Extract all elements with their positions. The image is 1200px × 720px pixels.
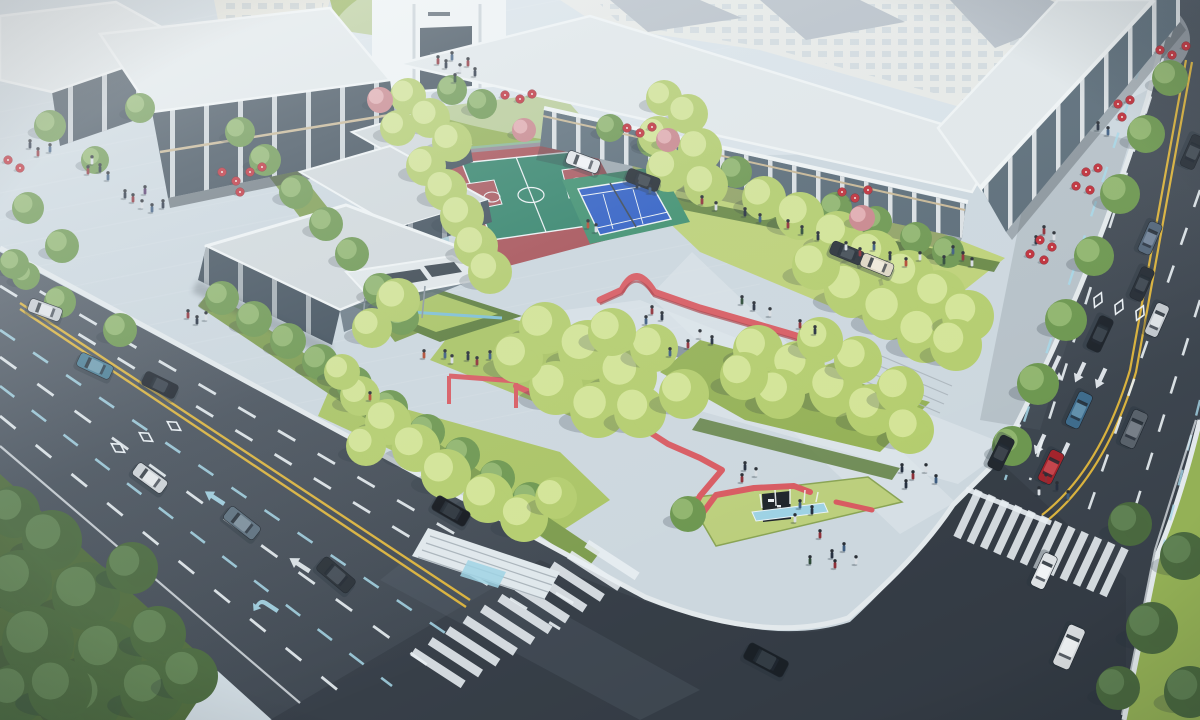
rendering-canvas xyxy=(0,0,1200,720)
park-aerial-rendering xyxy=(0,0,1200,720)
vignette-overlay xyxy=(0,0,1200,720)
